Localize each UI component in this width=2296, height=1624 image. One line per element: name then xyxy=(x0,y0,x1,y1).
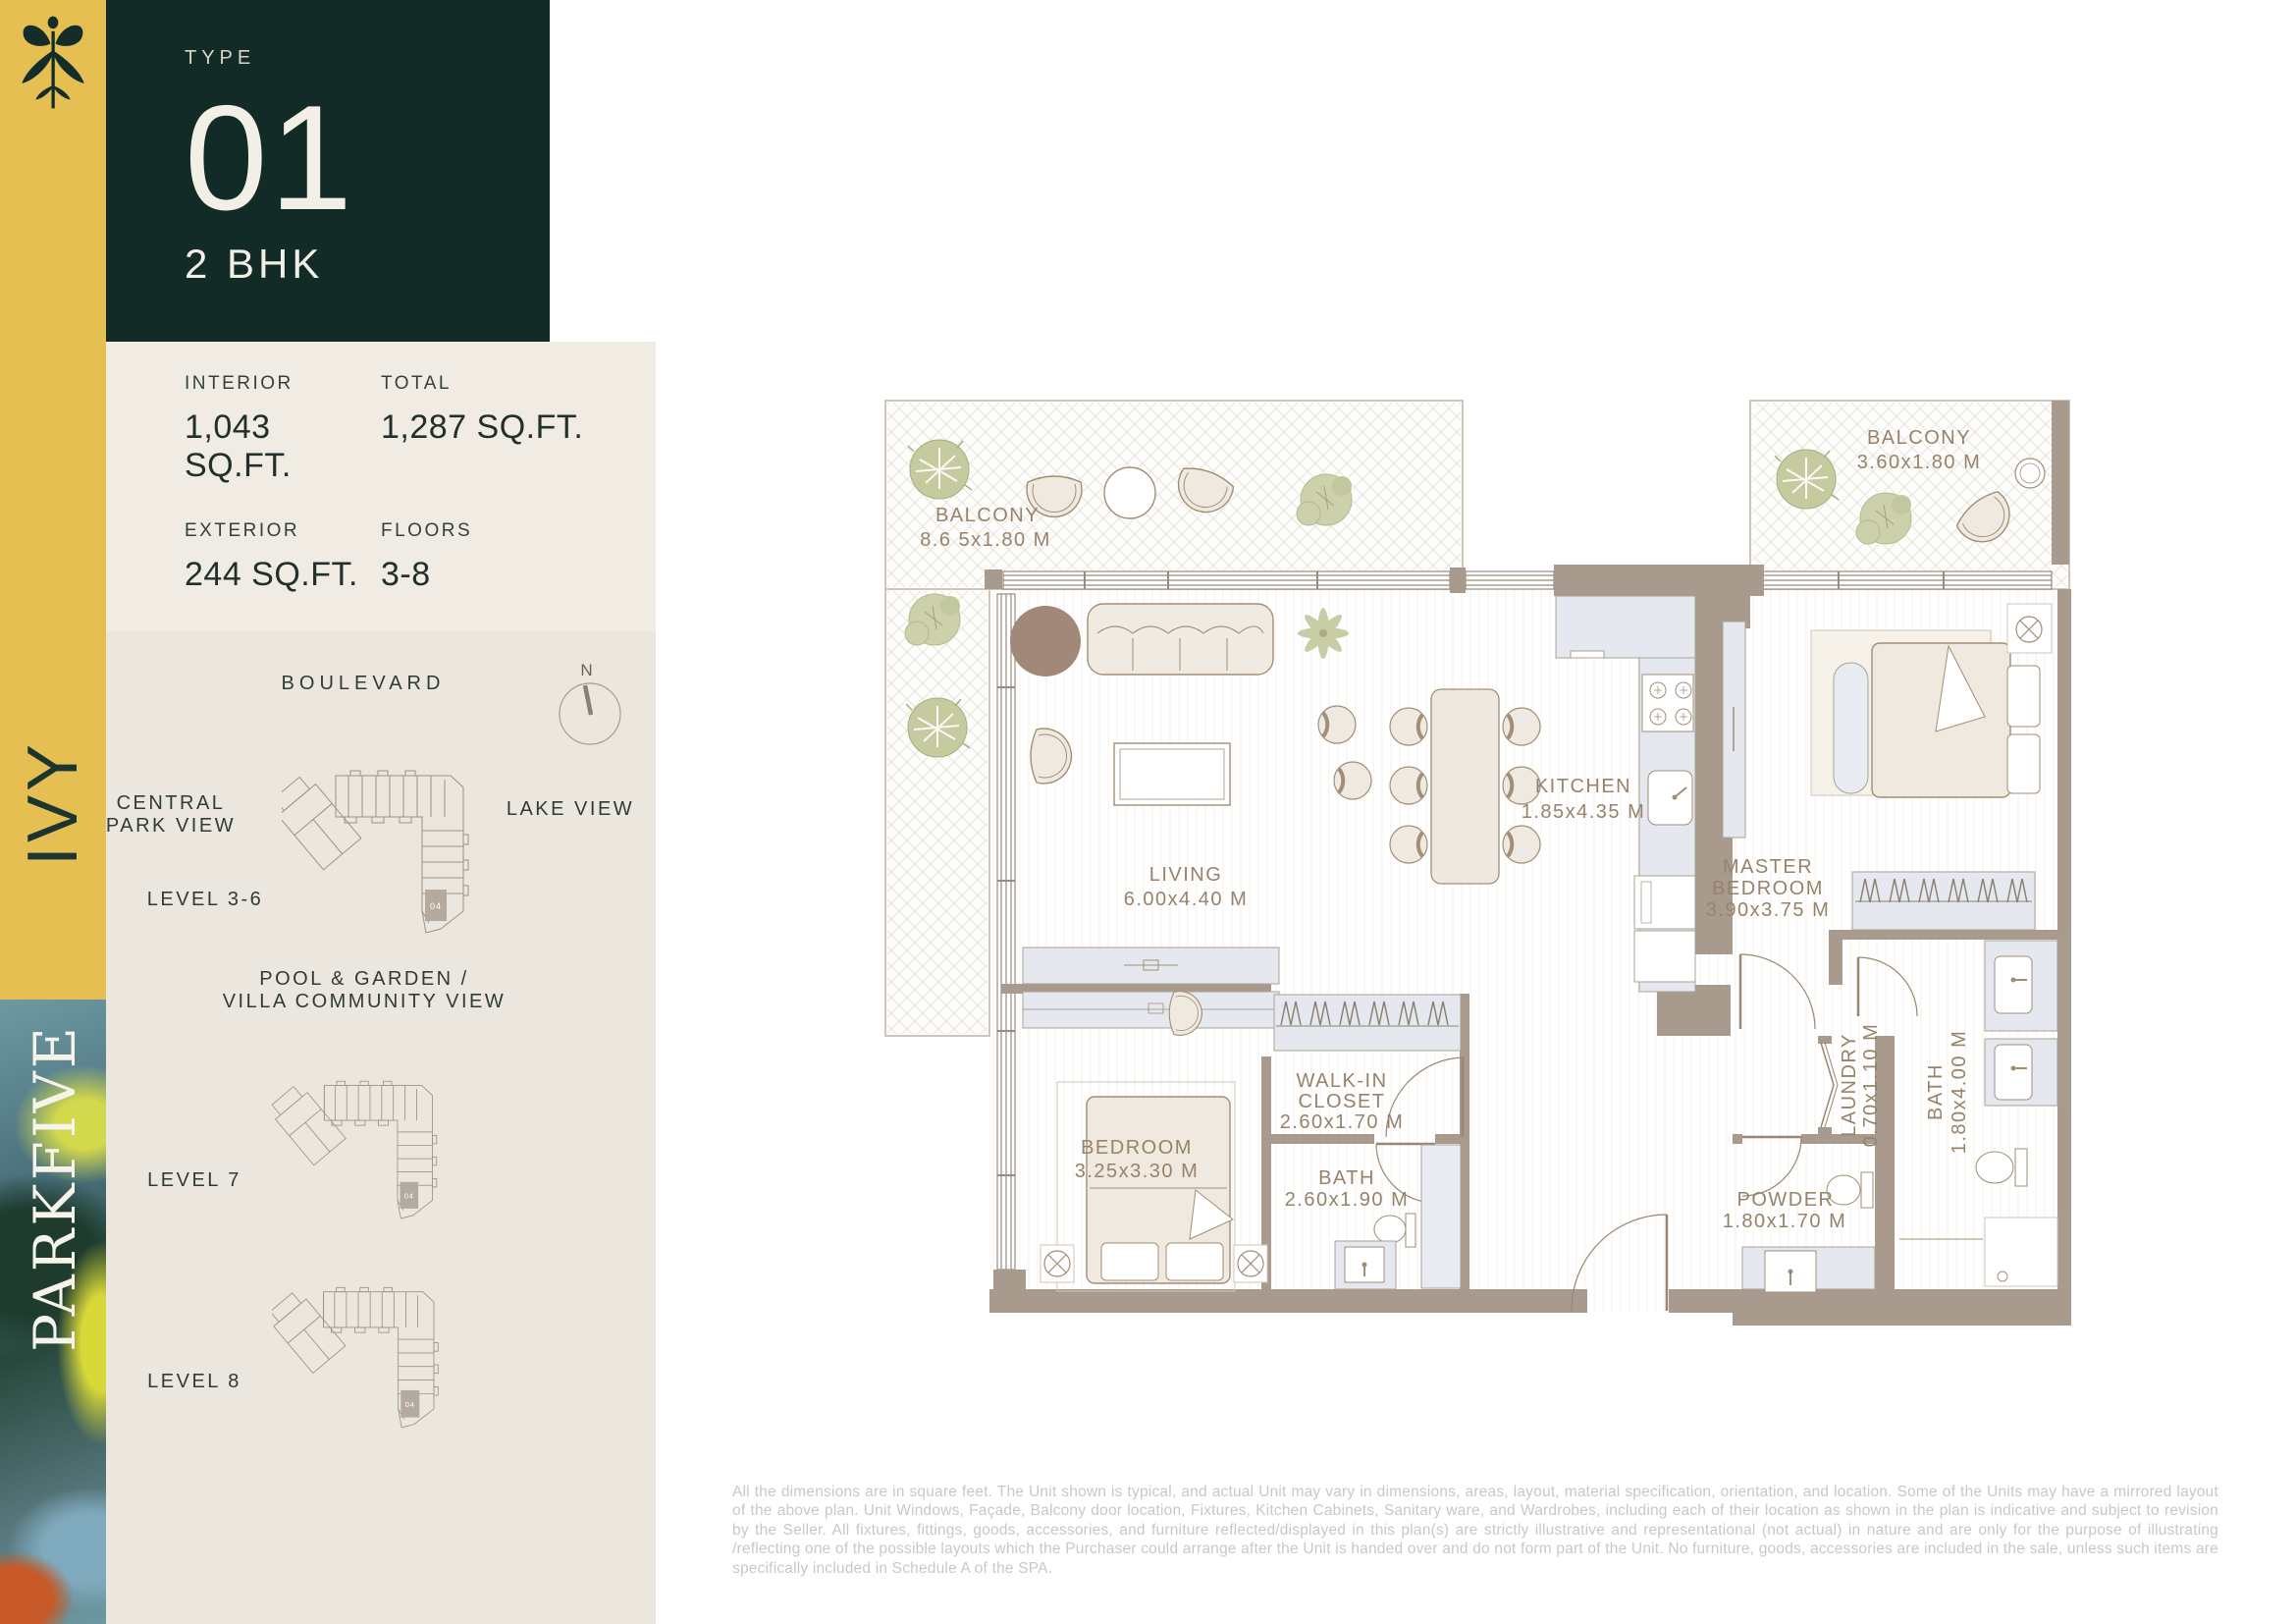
pool-line2: VILLA COMMUNITY VIEW xyxy=(207,991,521,1013)
compass: N xyxy=(558,656,622,749)
unit-type-card: TYPE 01 2 BHK xyxy=(106,0,550,342)
balcony-left-label: BALCONY xyxy=(935,505,1040,526)
master-bedroom-line2: BEDROOM xyxy=(1712,878,1824,899)
balcony-right-label: BALCONY xyxy=(1867,427,1971,449)
shower-column xyxy=(1421,1145,1461,1288)
flower-stem xyxy=(51,31,54,109)
master-bench xyxy=(1834,663,1868,793)
bedroom-dims: 3.25x3.30 M xyxy=(1075,1161,1200,1182)
north-label: N xyxy=(580,661,593,679)
pillow xyxy=(1101,1243,1158,1280)
central-park-line1: CENTRAL xyxy=(97,792,244,815)
walkin-line1: WALK-IN xyxy=(1296,1070,1387,1092)
building-name-vertical: IVY xyxy=(0,722,106,884)
stat-label: EXTERIOR xyxy=(185,520,381,542)
pillow xyxy=(2007,734,2040,793)
pool-garden-view-label: POOL & GARDEN / VILLA COMMUNITY VIEW xyxy=(207,968,521,1013)
balcony-right-dims: 3.60x1.80 M xyxy=(1857,452,1982,473)
lake-view-label: LAKE VIEW xyxy=(492,798,649,821)
laundry-dims: 0.70x1.10 M xyxy=(1860,1023,1882,1148)
balcony-table xyxy=(1104,467,1155,518)
stat-value: 3-8 xyxy=(381,556,656,594)
stat-total: TOTAL 1,287 SQ.FT. xyxy=(381,373,656,485)
toilet-tank xyxy=(2015,1149,2027,1186)
unit-config: 2 BHK xyxy=(185,241,550,288)
level-8-label: LEVEL 8 xyxy=(116,1371,273,1393)
round-rug xyxy=(1010,606,1081,677)
disclaimer-text: All the dimensions are in square feet. T… xyxy=(732,1483,2218,1578)
type-number: 01 xyxy=(185,83,550,233)
level-3-6-label: LEVEL 3-6 xyxy=(127,889,284,911)
coffee-table xyxy=(1114,743,1230,805)
central-park-view-label: CENTRAL PARK VIEW xyxy=(97,792,244,838)
stat-interior: INTERIOR 1,043 SQ.FT. xyxy=(185,373,381,485)
walkin-dims: 2.60x1.70 M xyxy=(1280,1111,1405,1133)
keyplan-level-3-6 xyxy=(282,766,478,940)
stat-exterior: EXTERIOR 244 SQ.FT. xyxy=(185,520,381,594)
master-bath-dims: 1.80x4.00 M xyxy=(1949,1030,1970,1155)
keyplan-level-7 xyxy=(272,1077,452,1224)
project-name: PARKFIVE xyxy=(22,1024,88,1352)
bath-dims: 2.60x1.90 M xyxy=(1285,1189,1410,1211)
keyplan-panel: BOULEVARD N CENTRAL PARK VIEW LAKE VIEW … xyxy=(106,631,656,1624)
toilet xyxy=(1374,1216,1406,1243)
stat-value: 244 SQ.FT. xyxy=(185,556,381,594)
pillow xyxy=(2007,666,2040,727)
powder-dims: 1.80x1.70 M xyxy=(1723,1211,1847,1232)
master-bedroom-dims: 3.90x3.75 M xyxy=(1706,899,1831,921)
kitchen-counter-top xyxy=(1556,596,1695,658)
bedroom-label: BEDROOM xyxy=(1081,1137,1193,1159)
toilet xyxy=(1976,1152,2013,1183)
building-name: IVY xyxy=(13,739,93,865)
floorplan-drawing: BALCONY 8.6 5x1.80 M BALCONY 3.60x1.80 M… xyxy=(883,393,2101,1355)
master-bath-label: BATH xyxy=(1925,1063,1947,1120)
boulevard-label: BOULEVARD xyxy=(245,673,481,695)
kitchen-cabinet xyxy=(1634,876,1695,929)
flower-logo-icon xyxy=(16,14,90,116)
keyplan-level-8 xyxy=(272,1283,452,1434)
kitchen-sink xyxy=(1648,771,1692,825)
kitchen-cabinet xyxy=(1634,931,1695,982)
brochure-page: IVY PARKFIVE TYPE 01 2 BHK INTERIOR 1,04… xyxy=(0,0,2296,1624)
stat-value: 1,043 SQ.FT. xyxy=(185,408,381,485)
walkin-closet-fixtures xyxy=(1274,995,1461,1051)
kitchen-label: KITCHEN xyxy=(1535,776,1631,797)
stat-label: FLOORS xyxy=(381,520,656,542)
pool-line1: POOL & GARDEN / xyxy=(207,968,521,991)
living-label: LIVING xyxy=(1149,864,1223,886)
bedroom-dresser xyxy=(1023,992,1279,1028)
central-park-line2: PARK VIEW xyxy=(97,815,244,838)
dining-table xyxy=(1431,689,1499,884)
walkin-line2: CLOSET xyxy=(1298,1091,1385,1112)
stat-floors: FLOORS 3-8 xyxy=(381,520,656,594)
toilet-tank xyxy=(1861,1172,1873,1208)
project-name-vertical: PARKFIVE xyxy=(0,1000,106,1624)
bath-label: BATH xyxy=(1318,1167,1375,1189)
toilet-tank xyxy=(1406,1214,1415,1247)
type-label: TYPE xyxy=(185,47,550,70)
powder-label: POWDER xyxy=(1737,1189,1835,1211)
area-stats-panel: INTERIOR 1,043 SQ.FT. TOTAL 1,287 SQ.FT.… xyxy=(106,342,656,631)
shower xyxy=(1985,1218,2057,1286)
stat-label: TOTAL xyxy=(381,373,656,395)
balcony-left-dims: 8.6 5x1.80 M xyxy=(920,529,1051,551)
pillow xyxy=(1166,1243,1223,1280)
stat-value: 1,287 SQ.FT. xyxy=(381,408,656,447)
stat-label: INTERIOR xyxy=(185,373,381,395)
living-dims: 6.00x4.40 M xyxy=(1124,889,1249,910)
laundry-label: LAUNDRY xyxy=(1839,1033,1860,1137)
palm-plant xyxy=(1298,608,1349,659)
master-bedroom-line1: MASTER xyxy=(1723,856,1813,878)
sink xyxy=(1995,956,2032,1013)
level-7-label: LEVEL 7 xyxy=(116,1169,273,1192)
sink xyxy=(1995,1045,2032,1100)
compass-needle-icon xyxy=(585,685,591,715)
kitchen-dims: 1.85x4.35 M xyxy=(1522,801,1646,823)
